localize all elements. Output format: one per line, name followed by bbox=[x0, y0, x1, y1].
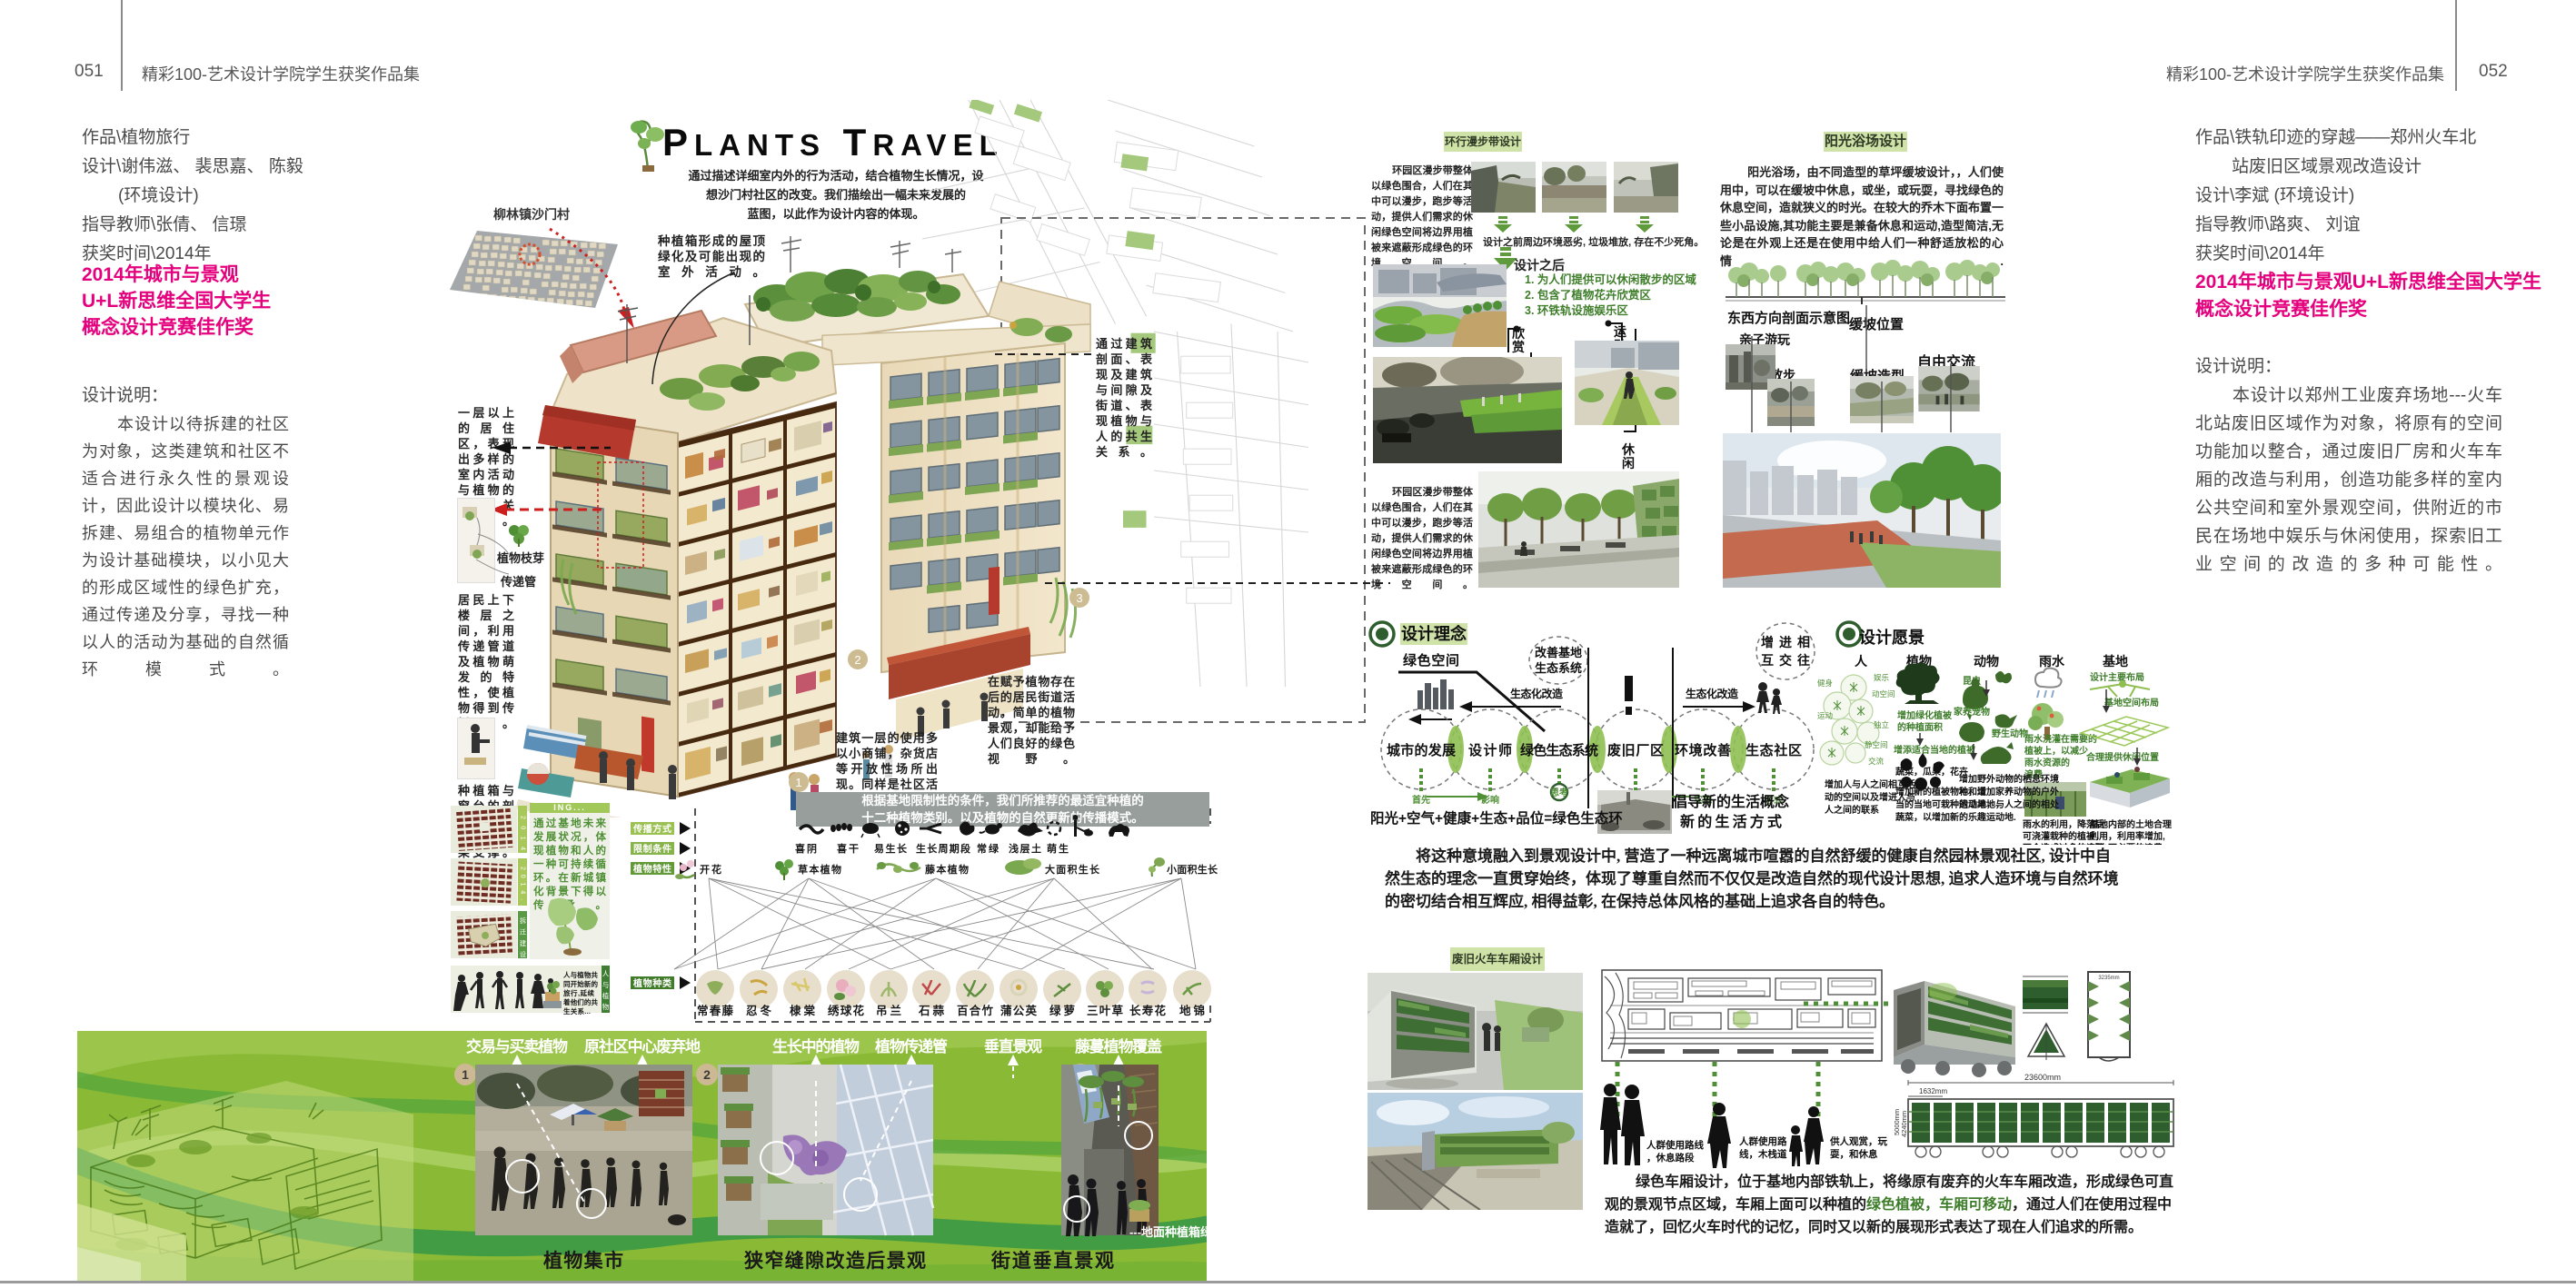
svg-text:蔬菜，以增加新的乐趣运动地.: 蔬菜，以增加新的乐趣运动地. bbox=[1895, 811, 2016, 823]
svg-text:生长周期段: 生长周期段 bbox=[916, 842, 970, 855]
svg-text:设计师: 设计师 bbox=[1468, 742, 1512, 758]
svg-text:草本植物: 草本植物 bbox=[798, 863, 841, 876]
svg-text:基地空间布局: 基地空间布局 bbox=[2104, 697, 2159, 708]
svg-text:交易与买卖植物: 交易与买卖植物 bbox=[466, 1037, 568, 1055]
svg-text:植物集市: 植物集市 bbox=[543, 1250, 623, 1272]
svg-text:3235mm: 3235mm bbox=[2098, 976, 2119, 981]
svg-text:人: 人 bbox=[1855, 654, 1868, 669]
svg-text:垂直景观: 垂直景观 bbox=[984, 1037, 1042, 1055]
svg-text:交流: 交流 bbox=[1868, 757, 1885, 766]
svg-text:废旧厂区: 废旧厂区 bbox=[1607, 742, 1664, 758]
svg-text:环境改善: 环境改善 bbox=[1675, 742, 1731, 758]
svg-text:同开始新的: 同开始新的 bbox=[563, 979, 599, 988]
svg-text:原社区中心废弃地: 原社区中心废弃地 bbox=[584, 1037, 701, 1055]
svg-text:绿色生态系统: 绿色生态系统 bbox=[1520, 742, 1598, 758]
svg-text:萌生: 萌生 bbox=[1047, 842, 1069, 855]
svg-text:生态社区: 生态社区 bbox=[1746, 742, 1802, 758]
svg-text:23600mm: 23600mm bbox=[2024, 1073, 2061, 1082]
svg-text:雨水: 雨水 bbox=[2039, 654, 2065, 669]
svg-text:小面积生长: 小面积生长 bbox=[1166, 863, 1218, 876]
svg-text:着他们的共: 着他们的共 bbox=[562, 997, 599, 1006]
svg-text:开花: 开花 bbox=[700, 863, 721, 876]
svg-text:增进相: 增进相 bbox=[1761, 635, 1810, 649]
svg-text:人之间的联系: 人之间的联系 bbox=[1825, 804, 1879, 816]
svg-text:百合竹: 百合竹 bbox=[957, 1004, 993, 1017]
svg-text:运动地，与人之间的相处: 运动地，与人之间的相处 bbox=[1959, 798, 2060, 810]
svg-text:生关系...: 生关系... bbox=[563, 1006, 591, 1016]
svg-text:绣球花: 绣球花 bbox=[827, 1004, 864, 1017]
svg-text:独立: 独立 bbox=[1874, 720, 1890, 729]
svg-text:改善基地: 改善基地 bbox=[1535, 646, 1582, 659]
svg-text:静空间: 静空间 bbox=[1865, 740, 1888, 749]
svg-text:旅行,延续: 旅行,延续 bbox=[563, 988, 595, 997]
svg-text:1632mm: 1632mm bbox=[1919, 1087, 1947, 1095]
svg-text:4240mm: 4240mm bbox=[1900, 1111, 1908, 1137]
svg-text:---地面种植箱绿化: ---地面种植箱绿化 bbox=[1129, 1225, 1207, 1239]
svg-text:植被上，以减少: 植被上，以减少 bbox=[2024, 745, 2088, 757]
svg-text:植物特性: 植物特性 bbox=[632, 863, 671, 875]
svg-text:植物传递管: 植物传递管 bbox=[875, 1037, 948, 1055]
svg-text:人与植物共: 人与植物共 bbox=[563, 970, 599, 979]
svg-text:蔬菜，瓜果，花卉: 蔬菜，瓜果，花卉 bbox=[1895, 766, 1968, 778]
svg-text:雨水资源的: 雨水资源的 bbox=[2024, 757, 2070, 768]
svg-text:阳光+空气+健康+生态+品位=绿色生态环: 阳光+空气+健康+生态+品位=绿色生态环 bbox=[1370, 809, 1623, 827]
svg-text:生态化改造: 生态化改造 bbox=[1686, 687, 1739, 700]
svg-text:3: 3 bbox=[1076, 591, 1082, 605]
svg-text:野生动物: 野生动物 bbox=[1992, 728, 2028, 739]
svg-text:利用，利用率增加,: 利用，利用率增加, bbox=[2090, 830, 2165, 842]
svg-text:植物种类: 植物种类 bbox=[632, 977, 671, 989]
svg-text:家养宠物: 家养宠物 bbox=[1954, 706, 1990, 718]
svg-text:喜阴: 喜阴 bbox=[795, 842, 817, 855]
svg-text:思考: 思考 bbox=[1550, 787, 1568, 798]
svg-text:增添适合当地的植被: 增添适合当地的植被 bbox=[1894, 744, 1976, 756]
svg-text:藤本植物: 藤本植物 bbox=[925, 863, 969, 876]
svg-text:设计主要布局: 设计主要布局 bbox=[2090, 671, 2144, 683]
svg-text:城市的发展: 城市的发展 bbox=[1387, 742, 1456, 758]
svg-text:2: 2 bbox=[854, 653, 860, 667]
svg-text:倡导新的生活概念: 倡导新的生活概念 bbox=[1672, 793, 1790, 810]
svg-text:长寿花: 长寿花 bbox=[1129, 1004, 1166, 1017]
svg-text:藤蔓植物覆盖: 藤蔓植物覆盖 bbox=[1075, 1037, 1162, 1055]
svg-text:易生长: 易生长 bbox=[874, 842, 908, 855]
svg-text:生长中的植物: 生长中的植物 bbox=[772, 1037, 860, 1055]
svg-text:生态系统: 生态系统 bbox=[1535, 661, 1582, 675]
svg-text:浅层土: 浅层土 bbox=[1009, 842, 1041, 855]
svg-text:健身: 健身 bbox=[1817, 679, 1833, 688]
svg-text:娱乐: 娱乐 bbox=[1874, 673, 1890, 682]
svg-text:合理提供休闲位置: 合理提供休闲位置 bbox=[2085, 751, 2159, 763]
svg-text:动物: 动物 bbox=[1974, 654, 1999, 669]
svg-text:大面积生长: 大面积生长 bbox=[1045, 863, 1100, 876]
svg-text:2: 2 bbox=[703, 1067, 711, 1082]
svg-text:限制条件: 限制条件 bbox=[633, 843, 671, 855]
svg-text:运动: 运动 bbox=[1817, 711, 1834, 720]
svg-text:互交往: 互交往 bbox=[1761, 653, 1810, 668]
svg-text:三叶草: 三叶草 bbox=[1087, 1004, 1123, 1017]
svg-text:首先: 首先 bbox=[1412, 794, 1430, 806]
svg-text:狭窄缝隙改造后景观: 狭窄缝隙改造后景观 bbox=[743, 1250, 926, 1272]
svg-text:1: 1 bbox=[795, 776, 801, 789]
svg-text:蒲公英: 蒲公英 bbox=[1000, 1004, 1037, 1017]
svg-text:增加绿化植被: 增加绿化植被 bbox=[1897, 709, 1953, 721]
svg-text:基地内部的土地合理: 基地内部的土地合理 bbox=[2089, 818, 2172, 830]
svg-text:喜干: 喜干 bbox=[837, 842, 859, 855]
svg-text:绿色空间: 绿色空间 bbox=[1403, 652, 1459, 669]
svg-text:常春藤: 常春藤 bbox=[697, 1004, 733, 1017]
svg-text:1: 1 bbox=[462, 1067, 469, 1082]
svg-text:基地: 基地 bbox=[2103, 654, 2128, 669]
svg-text:地，增加家养动物的户外: 地，增加家养动物的户外 bbox=[1959, 786, 2059, 798]
svg-text:生态化改造: 生态化改造 bbox=[1510, 687, 1564, 700]
svg-text:常绿: 常绿 bbox=[977, 842, 1000, 855]
svg-text:传播方式: 传播方式 bbox=[632, 823, 671, 835]
svg-text:增加野外动物的栖息环境: 增加野外动物的栖息环境 bbox=[1959, 773, 2059, 785]
svg-text:新的生活方式: 新的生活方式 bbox=[1680, 813, 1782, 830]
svg-text:的种植面积: 的种植面积 bbox=[1897, 721, 1943, 733]
svg-text:动空间: 动空间 bbox=[1872, 689, 1895, 698]
